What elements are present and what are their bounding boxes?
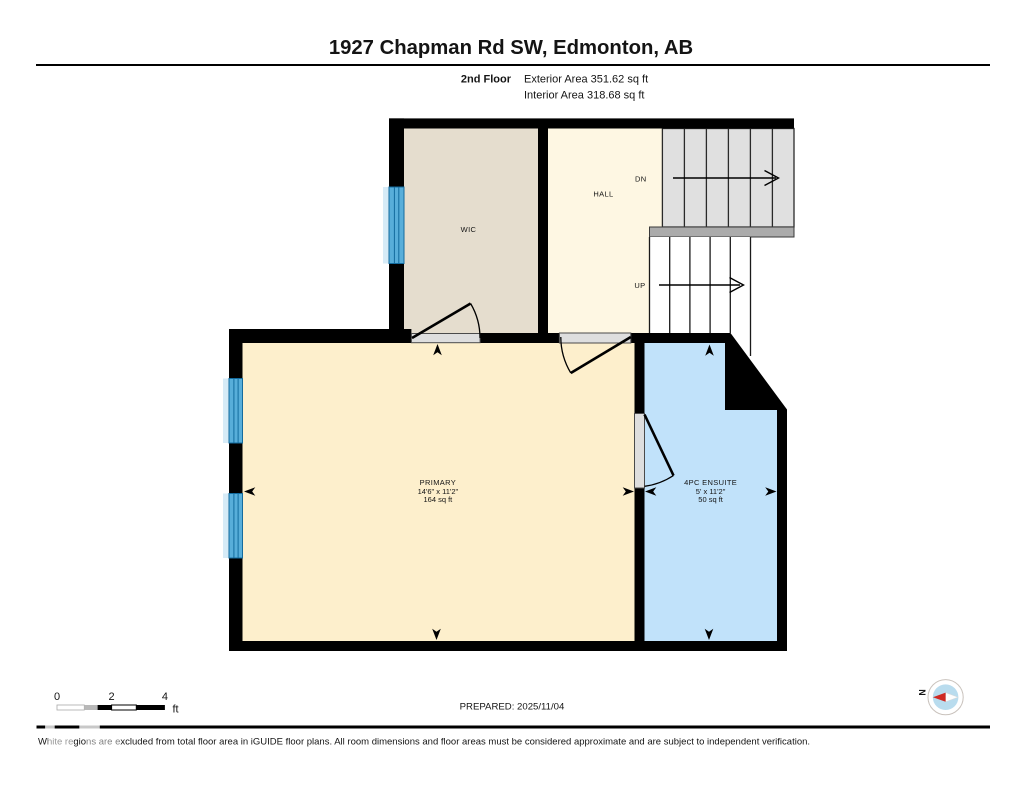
svg-text:HALL: HALL	[593, 190, 613, 199]
svg-text:2nd Floor: 2nd Floor	[461, 74, 512, 86]
svg-text:Exterior Area 351.62 sq ft: Exterior Area 351.62 sq ft	[524, 74, 648, 86]
svg-text:N: N	[917, 689, 927, 695]
svg-text:White regions are excluded fro: White regions are excluded from total fl…	[38, 737, 810, 748]
svg-text:ft: ft	[173, 704, 179, 716]
svg-text:Interior Area 318.68 sq ft: Interior Area 318.68 sq ft	[524, 90, 644, 102]
svg-text:164 sq ft: 164 sq ft	[424, 495, 454, 504]
svg-text:DN: DN	[635, 175, 647, 184]
svg-text:2: 2	[109, 691, 115, 703]
svg-text:1927 Chapman Rd SW, Edmonton,: 1927 Chapman Rd SW, Edmonton, AB	[329, 37, 693, 59]
svg-text:PREPARED: 2025/11/04: PREPARED: 2025/11/04	[460, 702, 565, 713]
svg-text:WIC: WIC	[461, 225, 477, 234]
svg-text:4PC ENSUITE: 4PC ENSUITE	[684, 478, 737, 487]
svg-text:0: 0	[54, 691, 60, 703]
svg-text:50 sq ft: 50 sq ft	[698, 495, 724, 504]
svg-text:UP: UP	[634, 281, 645, 290]
svg-text:PRIMARY: PRIMARY	[420, 478, 457, 487]
svg-text:4: 4	[162, 691, 168, 703]
